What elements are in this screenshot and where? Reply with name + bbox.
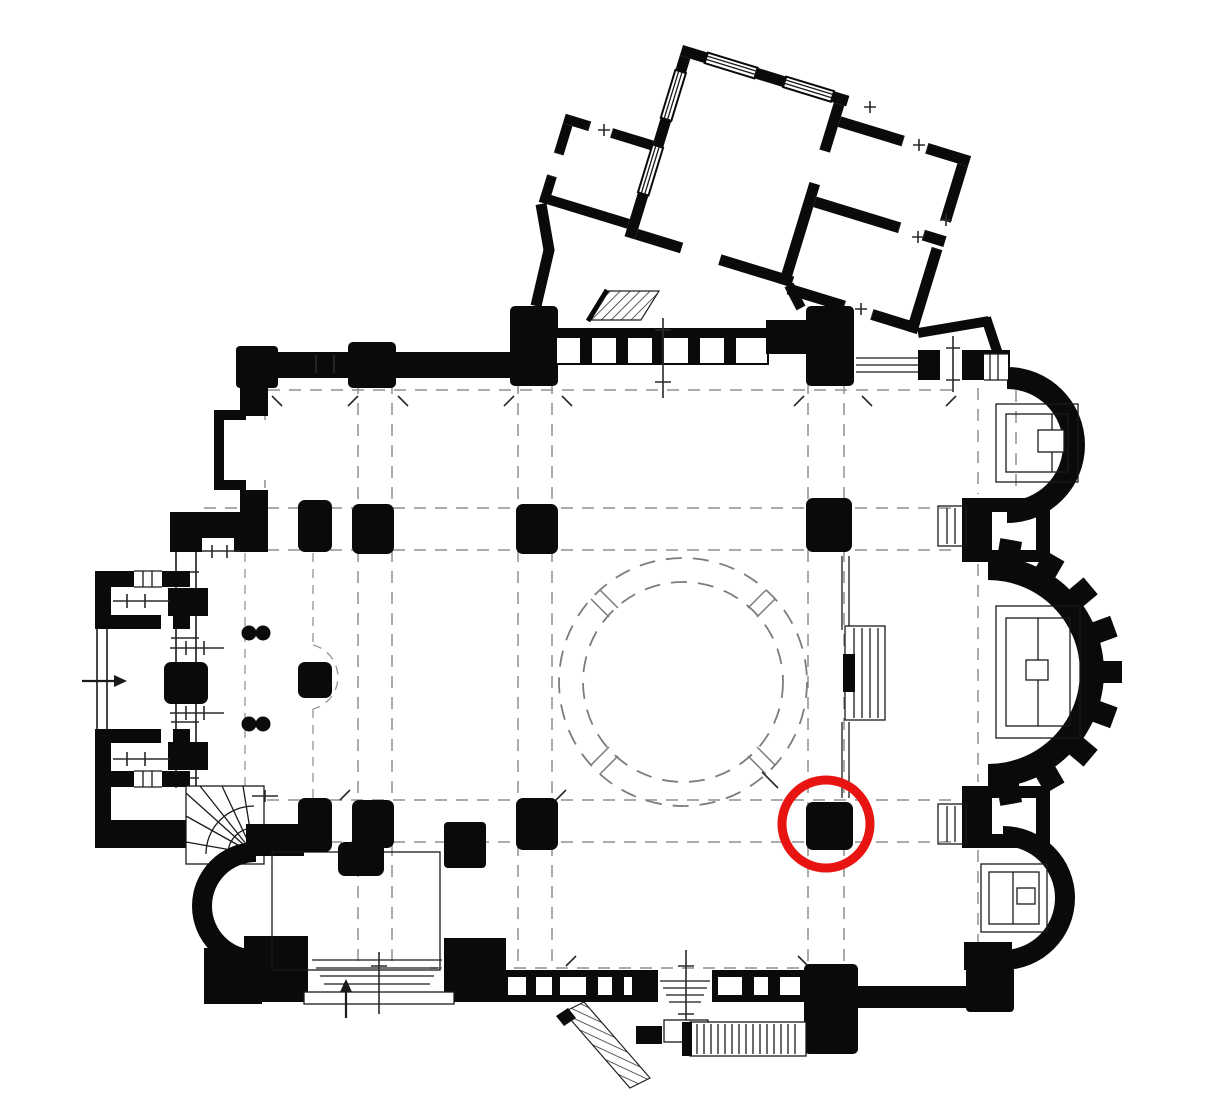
nw-crossing-pier	[516, 504, 558, 554]
sw-crossing-pier	[516, 798, 558, 850]
annex-survey-ticks	[598, 101, 952, 315]
chapel-entrance-steps	[312, 960, 442, 984]
south-big-pier-east	[804, 964, 858, 1054]
west-niche	[224, 420, 268, 480]
se-crossing-pier-highlighted	[806, 802, 853, 850]
south-exterior-stairs	[556, 1002, 806, 1088]
ne-junction-tick	[946, 336, 960, 392]
main-apse-altar	[996, 606, 1080, 738]
north-big-pier-west	[510, 306, 558, 386]
column-2	[242, 717, 257, 732]
west-wall-pier	[164, 662, 208, 704]
main-church-walls	[95, 306, 1050, 1088]
gallery-pier	[298, 662, 332, 698]
south-entrance-steps	[660, 981, 710, 1002]
north-big-pier-east	[806, 306, 854, 386]
west-entrance-arrow-head	[114, 675, 127, 687]
chapel-ne-pier	[444, 822, 486, 868]
ne-wall-window-lines	[856, 358, 918, 372]
south-door-jamb-west	[636, 970, 658, 1002]
column-0	[242, 626, 257, 641]
annex-building	[534, 18, 977, 334]
floor-plan-drawing	[0, 0, 1227, 1115]
south-chapel-entrance-arrow-head	[340, 979, 352, 992]
east-wall-window-s	[938, 804, 966, 844]
annex-west-connector-wall	[536, 204, 549, 306]
west-pier-south-b	[352, 800, 394, 848]
dome-outer-circle	[559, 558, 807, 806]
ne-crossing-pier	[806, 498, 852, 552]
se-apse-altar	[981, 864, 1047, 932]
dome-ring-links	[591, 590, 775, 774]
main-apse	[988, 538, 1122, 806]
east-wall-window-n	[938, 506, 966, 546]
dome-inner-circle	[583, 582, 783, 782]
diagonal-stair	[564, 1002, 650, 1088]
north-engaged-pier	[348, 342, 396, 388]
west-pier-north-b	[352, 504, 394, 554]
free-standing-piers	[164, 498, 853, 876]
solea-steps	[843, 626, 885, 720]
west-pier-north-a	[298, 500, 332, 552]
column-3	[256, 717, 271, 732]
chapel-axis-tick	[371, 952, 387, 1014]
column-1	[256, 626, 271, 641]
west-pier-south-a	[298, 798, 332, 852]
east-apses	[981, 354, 1122, 970]
dome-projection	[559, 558, 807, 806]
west-pier-south-ext	[338, 842, 384, 876]
paired-columns	[242, 626, 271, 732]
floor-plan-canvas	[0, 0, 1227, 1115]
